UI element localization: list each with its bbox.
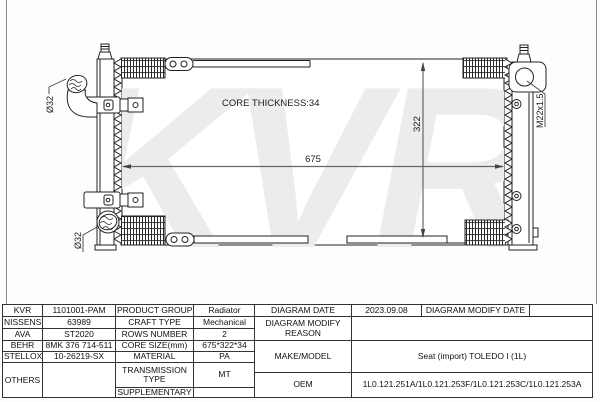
code-cell: 8MK 376 714-511 <box>43 341 116 352</box>
outlet-port <box>97 211 119 233</box>
spec-label: CORE SIZE(mm) <box>116 341 194 352</box>
make-model-value: Seat (import) TOLEDO I (1L) <box>352 341 593 373</box>
fin-block-top-right <box>463 58 507 78</box>
spec-label: TRANSMISSION TYPE <box>116 363 194 388</box>
brand-cell: AVA <box>3 329 43 341</box>
spec-label: SUPPLEMENTARY <box>116 388 194 398</box>
oem-value: 1L0.121.251A/1L0.121.253F/1L0.121.253C/1… <box>352 373 593 398</box>
info-label: DIAGRAM MODIFY DATE <box>422 305 530 317</box>
brand-cell: NISSENS <box>3 317 43 329</box>
crossref-spec-table: KVR 1101001-PAM PRODUCT GROUP Radiator N… <box>2 304 256 398</box>
info-label: OEM <box>255 373 352 398</box>
code-cell: 63989 <box>43 317 116 329</box>
spec-value: PA <box>194 352 256 363</box>
filler-thread-label: M22x1.5 <box>535 93 545 128</box>
code-cell: ST2020 <box>43 329 116 341</box>
top-connector-plate <box>165 58 193 71</box>
spec-value: 2 <box>194 329 256 341</box>
spec-label: PRODUCT GROUP <box>116 305 194 317</box>
spec-value: Mechanical <box>194 317 256 329</box>
inlet-diameter-label: Ø32 <box>45 96 55 113</box>
spec-value: 675*322*34 <box>194 341 256 352</box>
brand-cell: KVR <box>3 305 43 317</box>
spec-label: MATERIAL <box>116 352 194 363</box>
dim-width-label: 675 <box>305 154 321 165</box>
spec-label: CRAFT TYPE <box>116 317 194 329</box>
modify-date-value <box>530 305 593 317</box>
brand-cell: STELLOX <box>3 352 43 363</box>
outlet-diameter-label: Ø32 <box>73 232 83 249</box>
code-cell: 10-26219-SX <box>43 352 116 363</box>
spec-value <box>194 388 256 398</box>
fin-block-bottom-right <box>465 220 508 245</box>
code-cell <box>43 363 116 398</box>
diagram-date-value: 2023.09.08 <box>352 305 422 317</box>
info-label: MAKE/MODEL <box>255 341 352 373</box>
inlet-hose <box>65 73 97 117</box>
brand-cell: BEHR <box>3 341 43 352</box>
info-label: DIAGRAM DATE <box>255 305 352 317</box>
fin-block-bottom-left <box>121 216 165 245</box>
brand-cell: OTHERS <box>3 363 43 398</box>
left-tank-bolt <box>98 52 112 59</box>
radiator-diagram: KVR <box>0 0 600 304</box>
right-tank-bolt <box>517 54 531 62</box>
core-thickness-label: CORE THICKNESS:34 <box>222 98 320 109</box>
spec-label: ROWS NUMBER <box>116 329 194 341</box>
bottom-connector-plate <box>166 233 194 246</box>
mounting-bracket-bottom <box>84 192 143 208</box>
spec-value: MT <box>194 363 256 388</box>
info-label: DIAGRAM MODIFY REASON <box>255 317 352 341</box>
spec-value: Radiator <box>194 305 256 317</box>
modify-reason-value <box>352 317 593 341</box>
code-cell: 1101001-PAM <box>43 305 116 317</box>
diagram-info-table: DIAGRAM DATE 2023.09.08 DIAGRAM MODIFY D… <box>254 304 593 398</box>
fin-block-top-left <box>121 58 165 78</box>
radiator-spec-sheet: KVR <box>0 0 600 402</box>
dim-height-label: 322 <box>412 116 423 132</box>
right-tank <box>509 45 546 250</box>
